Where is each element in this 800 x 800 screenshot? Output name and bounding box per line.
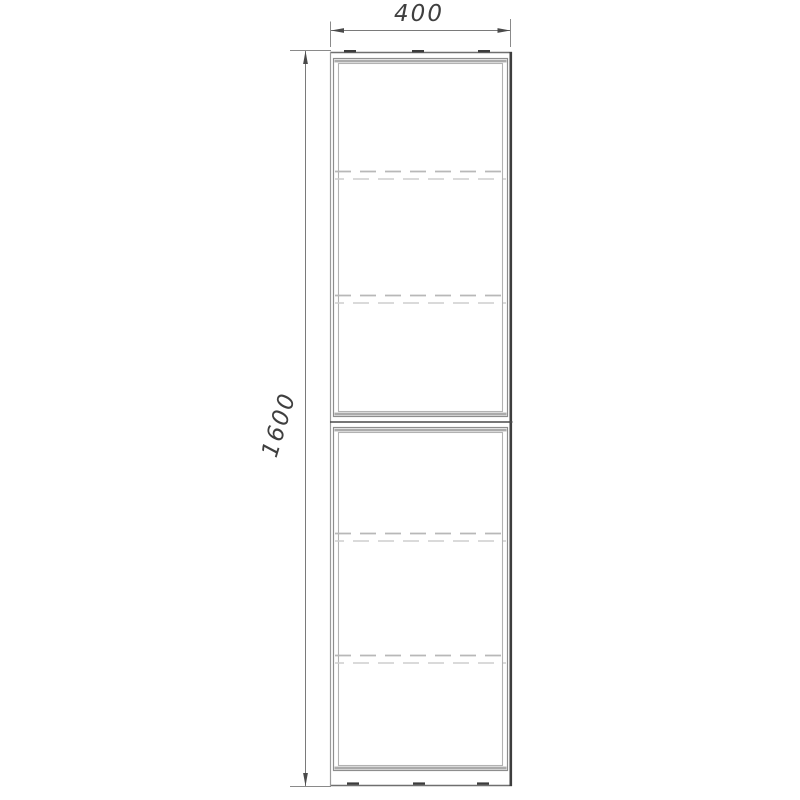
- cabinet-carcass: [330, 51, 513, 786]
- lower-door: [334, 428, 508, 771]
- arrowhead-right-icon: [498, 28, 511, 33]
- upper-door: [334, 59, 508, 417]
- lower-door-outer-frame: [334, 428, 508, 771]
- technical-drawing-canvas: 400 1600: [0, 0, 800, 800]
- lower-door-inner-frame: [339, 433, 503, 766]
- height-dimension-label: 1600: [257, 389, 301, 460]
- upper-door-inner-frame: [339, 64, 503, 412]
- lower-shelves-hidden-lines: [335, 534, 506, 664]
- upper-door-top-shade: [335, 60, 507, 63]
- cabinet-dimension-drawing: 400 1600: [0, 0, 800, 800]
- lower-door-top-shade: [335, 429, 507, 432]
- width-dimension-label: 400: [394, 1, 444, 27]
- width-dimension: 400: [331, 1, 511, 47]
- arrowhead-up-icon: [303, 51, 308, 64]
- arrowhead-left-icon: [331, 28, 344, 33]
- upper-shelves-hidden-lines: [335, 172, 506, 304]
- upper-door-outer-frame: [334, 59, 508, 417]
- lower-door-bottom-shade: [335, 767, 507, 770]
- upper-door-bottom-shade: [335, 413, 507, 416]
- arrowhead-down-icon: [303, 773, 308, 786]
- height-dimension: 1600: [257, 51, 331, 787]
